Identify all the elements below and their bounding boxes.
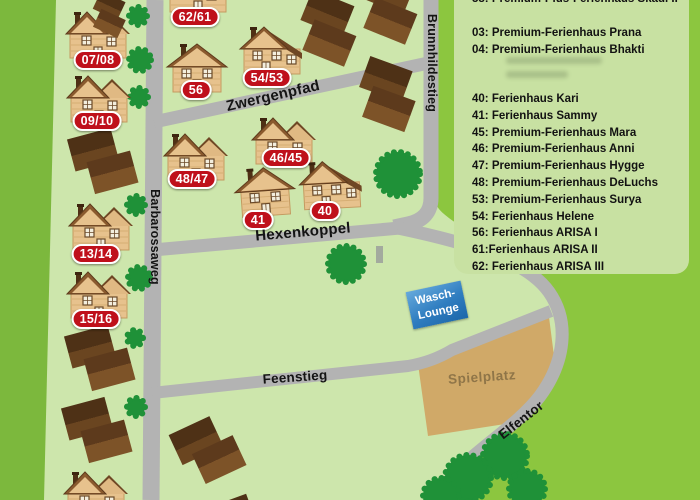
legend-item: 62: Ferienhaus ARISA III [472,259,658,276]
legend-smudge [506,71,568,78]
legend-item: 03: Premium-Ferienhaus Prana [472,25,645,42]
path-marker [376,246,383,263]
legend-item: 46: Premium-Ferienhaus Anni [472,141,658,158]
legend-item: 40: Ferienhaus Kari [472,91,658,108]
legend-group-top: 58: Premium-Plus-Ferienhaus Skadi II [472,0,678,5]
legend-item: 47: Premium-Ferienhaus Hygge [472,158,658,175]
legend-item: 53: Premium-Ferienhaus Surya [472,192,658,209]
legend-smudge [506,57,602,64]
legend-item: 45: Premium-Ferienhaus Mara [472,125,658,142]
legend-item: 56: Ferienhaus ARISA I [472,225,658,242]
legend-item: 41: Ferienhaus Sammy [472,108,658,125]
legend-item: 54: Ferienhaus Helene [472,209,658,226]
legend-panel: 58: Premium-Plus-Ferienhaus Skadi II 03:… [454,0,689,274]
legend-item: 58: Premium-Plus-Ferienhaus Skadi II [472,0,678,5]
park-map: 62/6107/0809/105654/5348/4746/45414013/1… [0,0,700,500]
legend-item: 48: Premium-Ferienhaus DeLuchs [472,175,658,192]
legend-group-houses: 40: Ferienhaus Kari41: Ferienhaus Sammy4… [472,91,658,276]
legend-group-premium: 03: Premium-Ferienhaus Prana04: Premium-… [472,25,645,59]
legend-item: 61:Ferienhaus ARISA II [472,242,658,259]
house-62/61 [166,0,230,12]
